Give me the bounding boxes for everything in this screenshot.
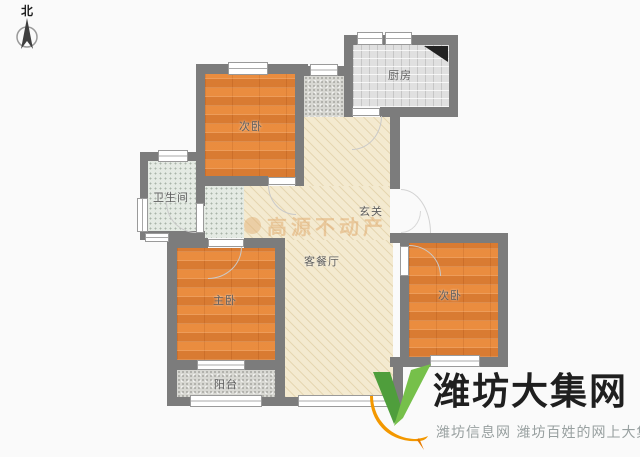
compass-arrow-icon — [12, 17, 42, 53]
window — [228, 62, 268, 75]
door-leaf-master-bedroom — [208, 239, 244, 247]
wall — [196, 176, 268, 186]
room-label-kitchen: 厨房 — [388, 67, 412, 83]
wall — [344, 107, 352, 117]
door-leaf-kitchen — [352, 108, 380, 116]
room-label-balcony: 阳台 — [214, 376, 238, 392]
wall — [498, 233, 508, 367]
room-label-living-dining: 客餐厅 — [304, 253, 340, 269]
room-label-master-bedroom: 主卧 — [213, 292, 237, 308]
brand-tagline: 潍坊信息网 潍坊百姓的网上大集 — [436, 422, 640, 442]
door-leaf-bedroom-right — [400, 246, 409, 276]
watermark-text: 高源不动产 — [267, 211, 387, 240]
room-floor-corridor — [204, 186, 244, 238]
room-label-bedroom-right: 次卧 — [438, 287, 462, 303]
wall — [295, 64, 304, 186]
window — [137, 198, 148, 232]
door-leaf-bedroom-top — [268, 177, 296, 185]
window — [357, 32, 383, 45]
room-floor-entry-tile — [304, 76, 344, 117]
wall — [275, 238, 285, 370]
wall — [390, 233, 508, 243]
wall — [380, 107, 458, 117]
wall — [196, 152, 205, 206]
brand-v-logo-icon — [363, 364, 437, 452]
sliding-door-window — [197, 360, 245, 370]
window — [145, 233, 169, 242]
wall — [344, 35, 353, 117]
compass-north-label: 北 — [12, 5, 42, 17]
window — [158, 150, 188, 162]
wall — [167, 238, 177, 370]
watermark: 高源不动产 — [244, 211, 387, 240]
window — [190, 395, 262, 407]
room-label-bathroom: 卫生间 — [153, 189, 189, 205]
watermark-logo-icon — [244, 217, 261, 234]
window — [430, 355, 480, 367]
compass: 北 — [12, 5, 42, 57]
floorplan-image: 北 — [0, 0, 640, 457]
wall — [449, 35, 458, 117]
room-label-bedroom-top: 次卧 — [239, 118, 263, 134]
wall — [390, 117, 400, 189]
door-leaf-bathroom — [196, 203, 204, 233]
window — [310, 64, 338, 76]
window — [385, 32, 412, 45]
brand-name: 潍坊大集网 — [433, 372, 628, 413]
